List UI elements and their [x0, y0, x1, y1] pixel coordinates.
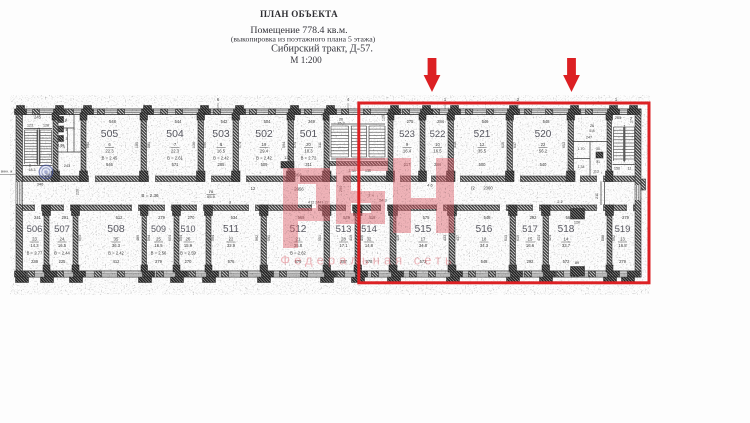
svg-text:М 1:200: М 1:200: [290, 55, 322, 65]
svg-text:ПЛАН ОБЪЕКТА: ПЛАН ОБЪЕКТА: [260, 9, 338, 19]
svg-text:Сибирский тракт, Д-57.: Сибирский тракт, Д-57.: [271, 44, 373, 55]
svg-text:(выкопировка из поэтажного пла: (выкопировка из поэтажного плана 5 этажа…: [231, 35, 376, 44]
